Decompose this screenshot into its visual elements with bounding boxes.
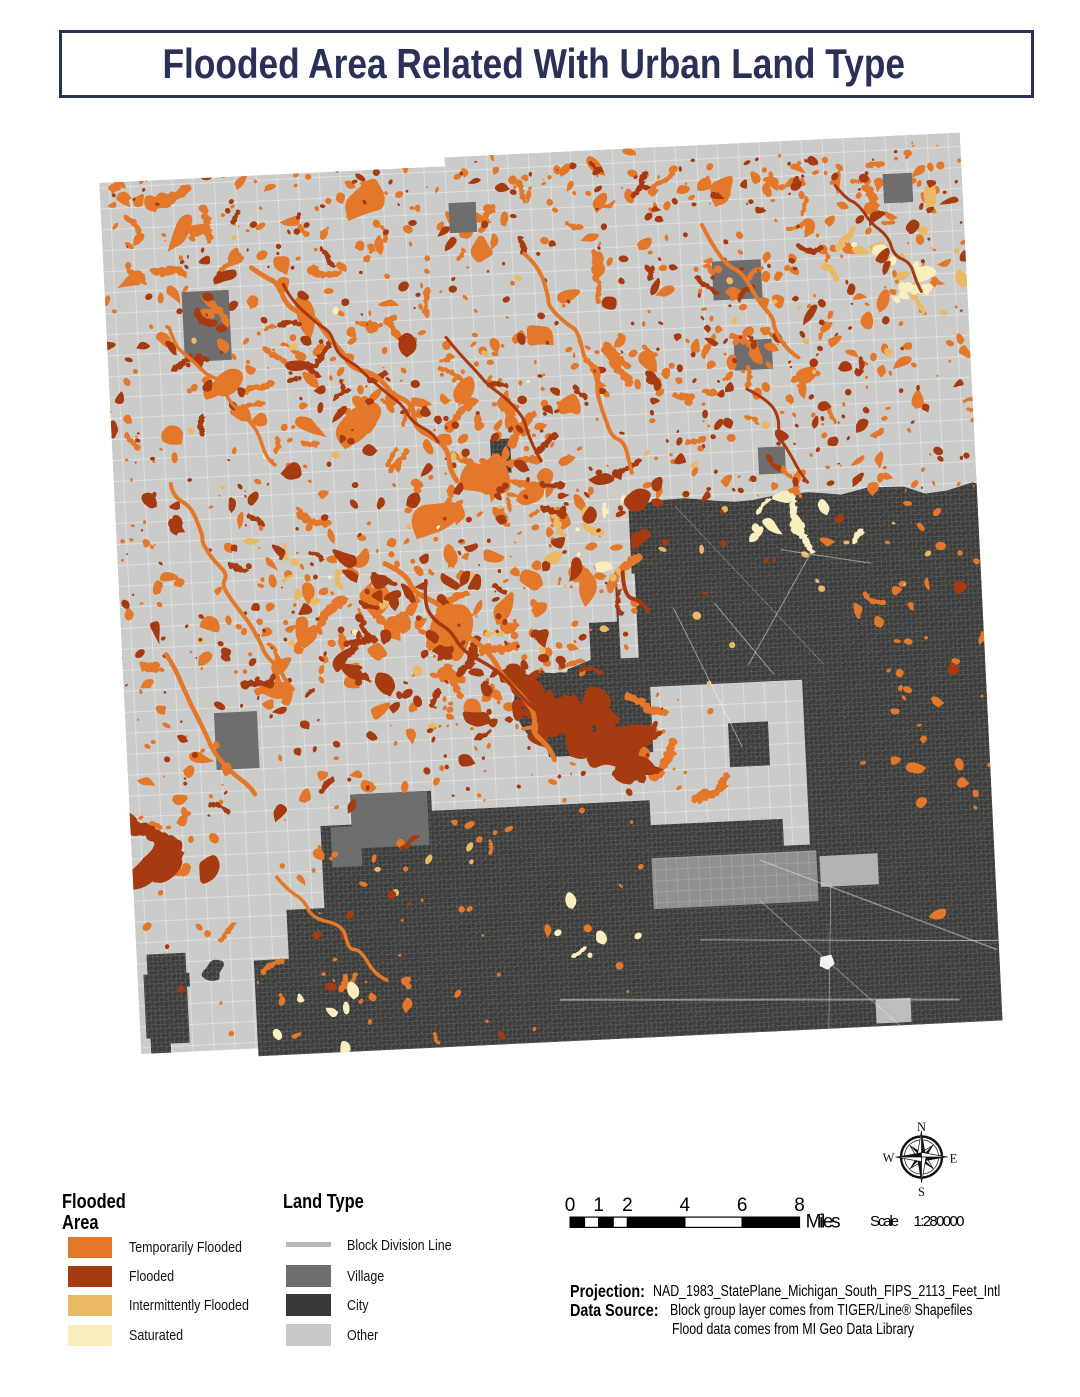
svg-text:2: 2 [622,1195,633,1216]
svg-text:Miles: Miles [806,1212,841,1233]
svg-text:W: W [883,1151,895,1165]
svg-text:0: 0 [565,1195,576,1216]
svg-text:S: S [918,1185,925,1199]
svg-text:1: 1 [593,1195,604,1216]
svg-text:N: N [917,1120,926,1134]
svg-text:4: 4 [680,1195,691,1216]
svg-text:6: 6 [737,1195,748,1216]
svg-text:1:280000: 1:280000 [914,1213,965,1230]
svg-text:Scale: Scale [870,1213,899,1230]
svg-text:E: E [950,1152,958,1166]
svg-text:8: 8 [794,1195,805,1216]
